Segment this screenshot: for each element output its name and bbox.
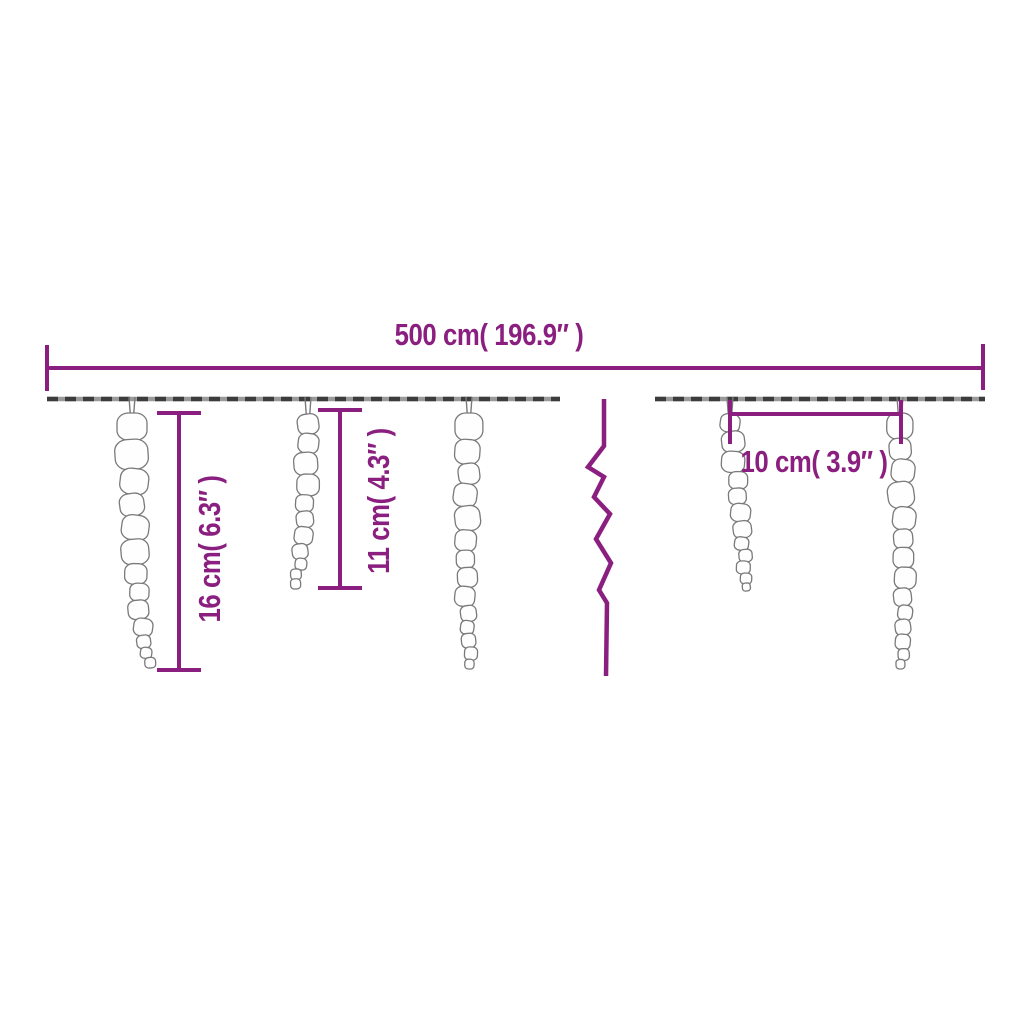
middle-icicle-length-label: 11 cm( 4.3″ ) [361, 428, 397, 574]
icicle-ornament-1 [114, 397, 156, 668]
dimension-line-middle-icicle [318, 410, 362, 588]
icicle-spacing-label: 10 cm( 3.9″ ) [740, 444, 887, 480]
break-symbol-zigzag [588, 399, 611, 676]
icicle-ornament-3 [452, 397, 483, 669]
icicle-ornament-2 [290, 397, 320, 589]
icicle-ornament-4 [719, 397, 753, 591]
icicle-lights-drawing [0, 0, 1024, 1024]
dimension-line-icicle-spacing [730, 400, 901, 444]
left-icicle-length-label: 16 cm( 6.3″ ) [192, 475, 228, 622]
total-length-label: 500 cm( 196.9″ ) [395, 317, 584, 353]
product-dimension-diagram: 500 cm( 196.9″ ) 16 cm( 6.3″ ) 11 cm( 4.… [0, 0, 1024, 1024]
